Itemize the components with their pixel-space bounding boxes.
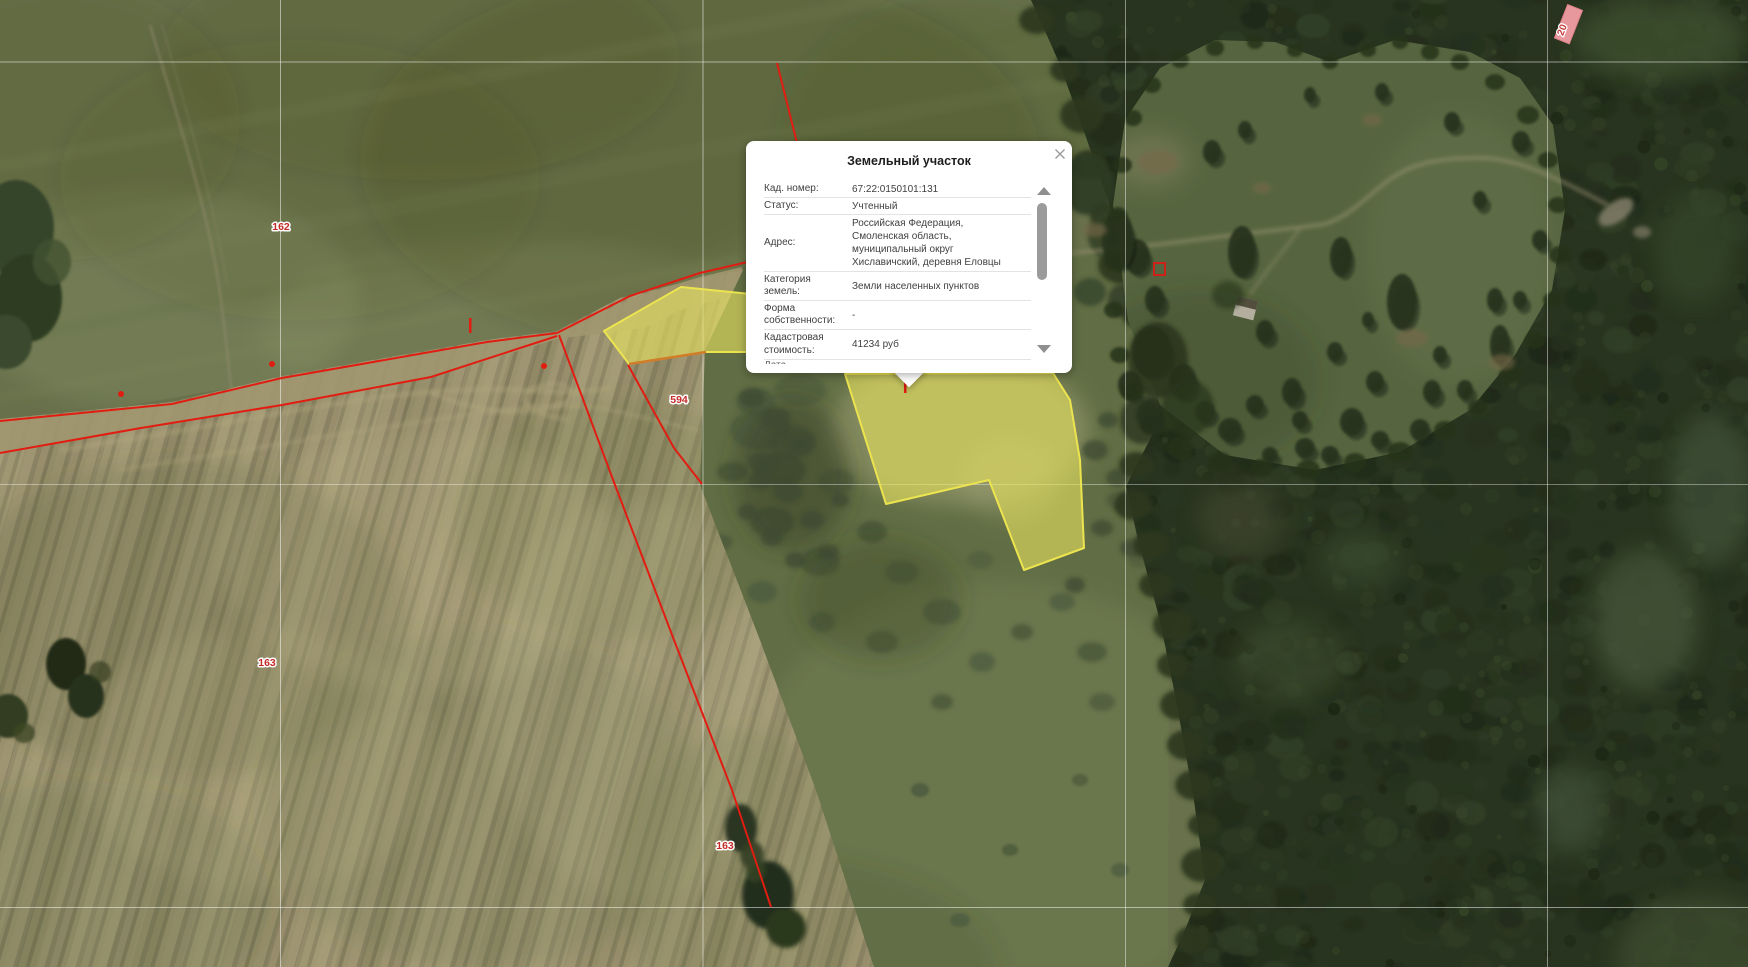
svg-text:163: 163 [258,657,276,669]
svg-text:162: 162 [272,221,290,233]
svg-text:163: 163 [716,840,734,852]
svg-text:594: 594 [670,394,688,406]
